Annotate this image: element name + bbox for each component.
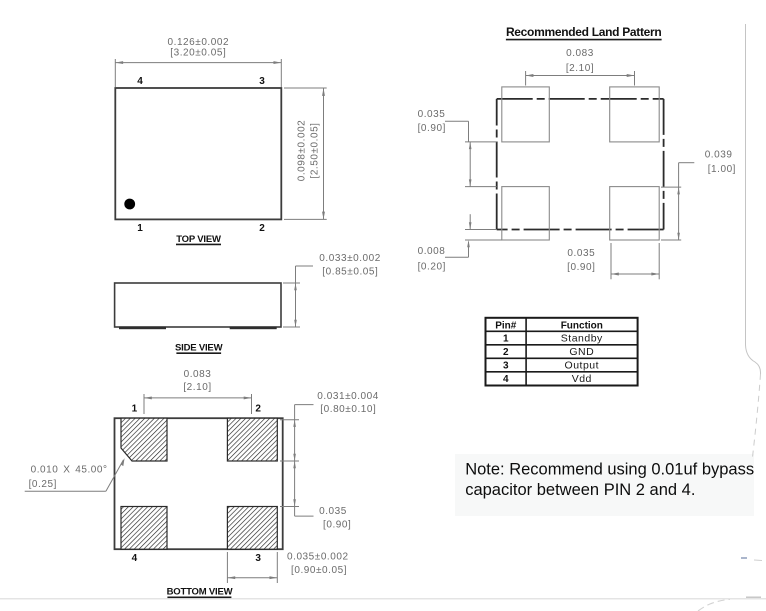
svg-text:BOTTOM VIEW: BOTTOM VIEW [167,587,233,598]
svg-text:Function: Function [561,320,603,331]
svg-text:TOP VIEW: TOP VIEW [176,234,221,245]
svg-text:[2.50±0.05]: [2.50±0.05] [310,122,321,178]
svg-text:0.035: 0.035 [319,506,347,517]
svg-text:[0.85±0.05]: [0.85±0.05] [322,266,378,277]
svg-text:[0.20]: [0.20] [418,262,446,273]
svg-text:capacitor between PIN 2 and 4.: capacitor between PIN 2 and 4. [465,481,695,499]
svg-text:0.035±0.002: 0.035±0.002 [287,552,349,563]
svg-text:0.083: 0.083 [184,369,212,380]
svg-text:Standby: Standby [561,333,603,345]
svg-text:0.083: 0.083 [566,48,594,59]
svg-text:[0.90±0.05]: [0.90±0.05] [291,565,347,576]
svg-text:[0.90]: [0.90] [567,262,595,273]
svg-text:[0.25]: [0.25] [29,479,57,490]
svg-text:Output: Output [565,360,600,372]
svg-text:0.098±0.002: 0.098±0.002 [297,120,308,182]
svg-text:0.039: 0.039 [705,150,733,161]
svg-text:0.031±0.004: 0.031±0.004 [317,391,379,402]
svg-text:[0.90]: [0.90] [418,123,446,134]
svg-text:1: 1 [137,223,143,234]
svg-text:[0.90]: [0.90] [323,519,351,530]
svg-text:Recommended Land Pattern: Recommended Land Pattern [506,25,662,39]
svg-text:[2.10]: [2.10] [183,382,211,393]
svg-text:SIDE VIEW: SIDE VIEW [175,343,223,354]
svg-text:0.010 X 45.00°: 0.010 X 45.00° [31,464,108,475]
svg-text:[2.10]: [2.10] [566,63,594,74]
svg-text:3: 3 [259,76,265,87]
svg-text:4: 4 [137,76,143,87]
svg-text:0.008: 0.008 [418,246,446,257]
svg-text:[3.20±0.05]: [3.20±0.05] [170,48,226,59]
svg-text:1: 1 [132,404,138,415]
svg-text:4: 4 [132,553,138,564]
svg-text:2: 2 [255,404,261,415]
svg-text:2: 2 [259,223,265,234]
svg-text:3: 3 [503,361,509,372]
svg-text:Pin#: Pin# [495,320,517,331]
svg-text:Note: Recommend using 0.01uf b: Note: Recommend using 0.01uf bypass [465,461,754,479]
svg-text:1: 1 [503,334,509,345]
svg-text:0.033±0.002: 0.033±0.002 [319,253,381,264]
svg-text:3: 3 [255,553,261,564]
svg-text:2: 2 [503,347,509,358]
svg-text:0.035: 0.035 [567,248,595,259]
svg-text:0.126±0.002: 0.126±0.002 [168,37,230,48]
svg-text:0.035: 0.035 [418,109,446,120]
svg-text:Vdd: Vdd [572,373,592,385]
svg-text:4: 4 [503,374,509,385]
svg-text:[1.00]: [1.00] [708,164,736,175]
svg-text:GND: GND [569,346,594,358]
svg-text:[0.80±0.10]: [0.80±0.10] [320,404,376,415]
